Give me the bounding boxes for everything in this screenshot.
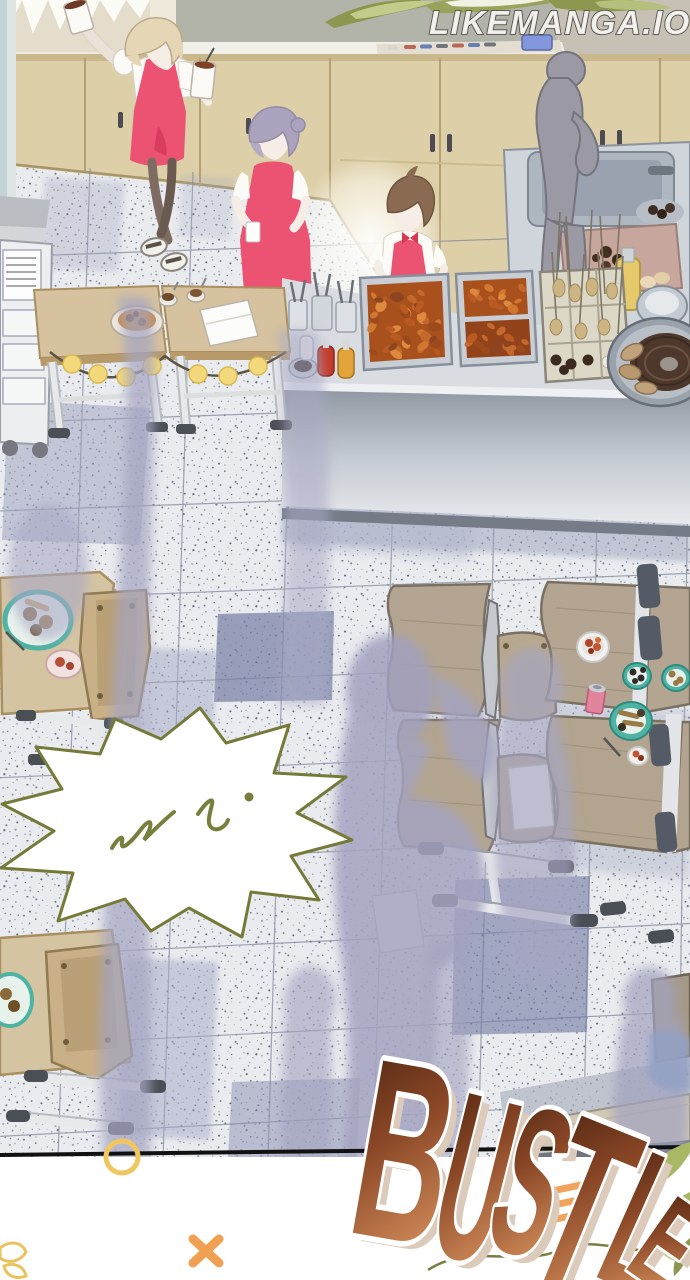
svg-text:LIKEMANGA.IO: LIKEMANGA.IO bbox=[429, 4, 690, 41]
